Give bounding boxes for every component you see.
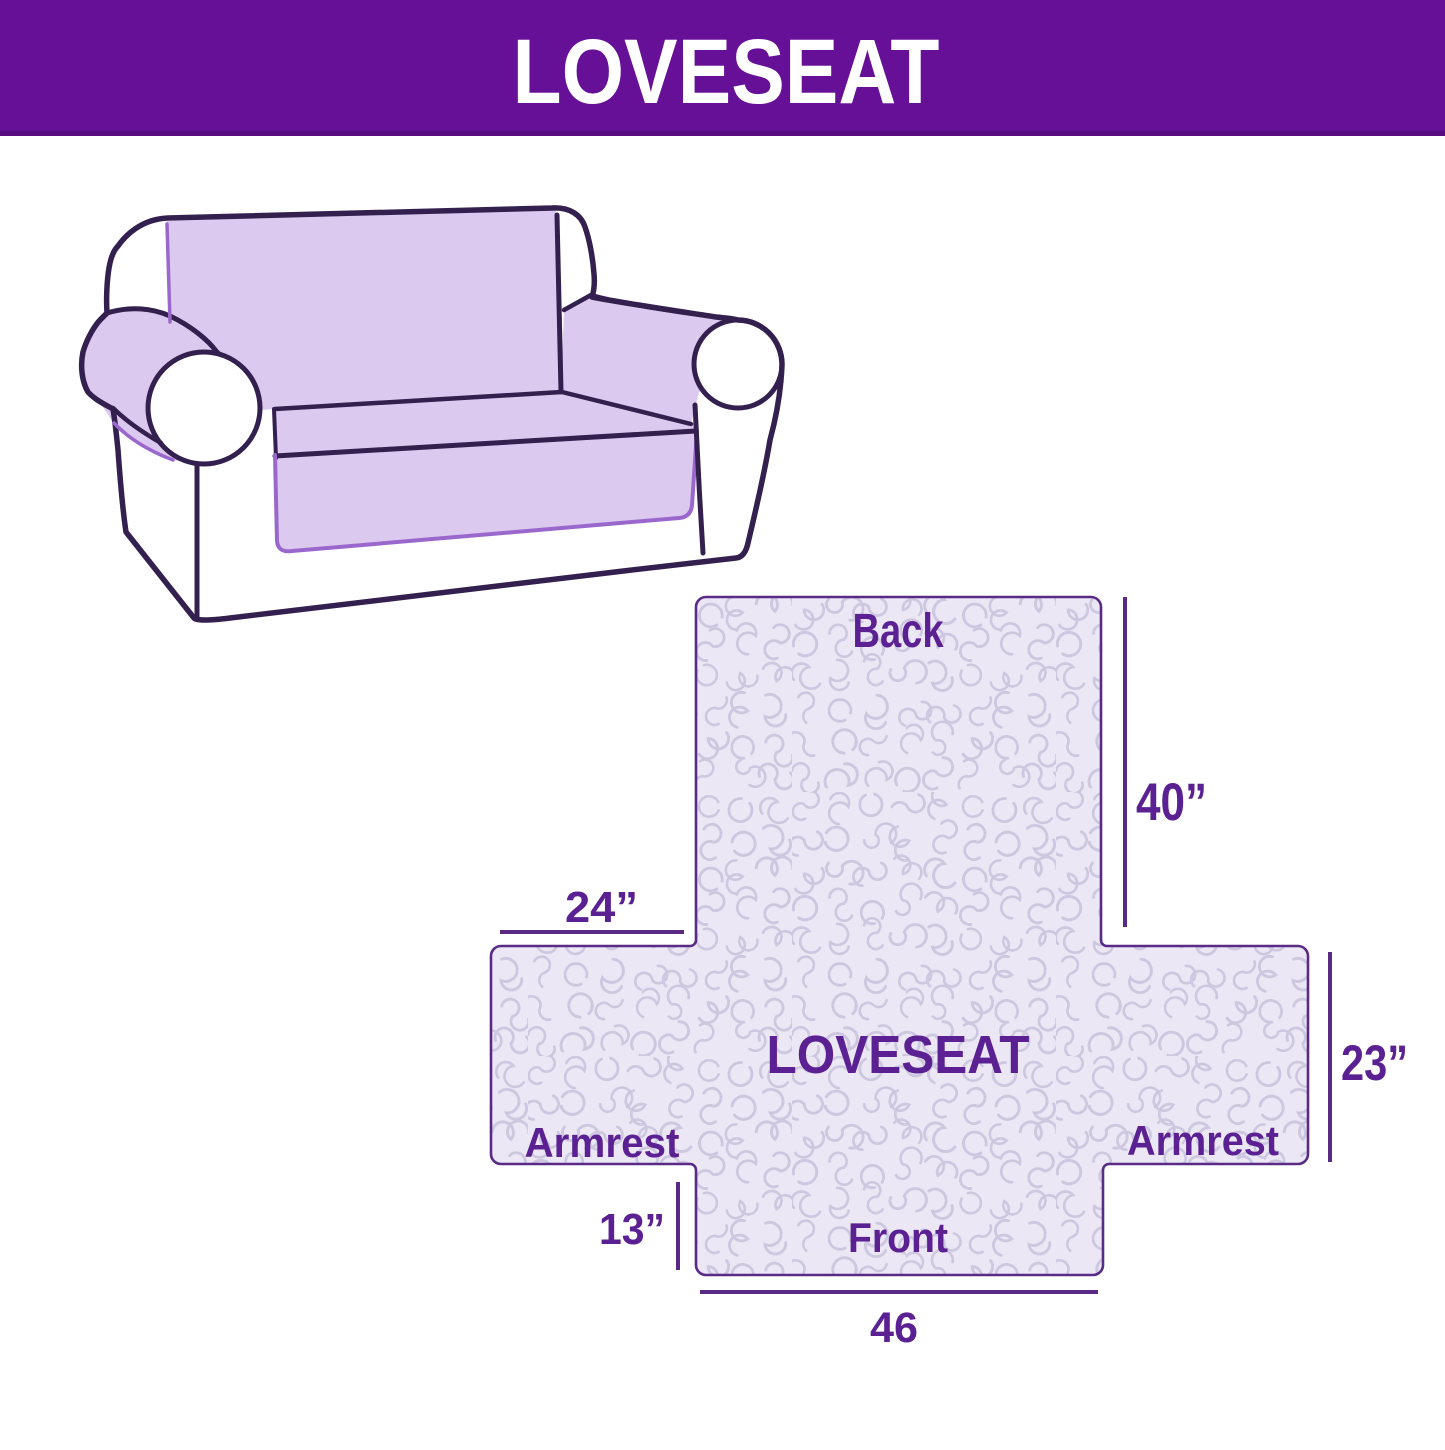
svg-text:Armrest: Armrest	[525, 1119, 680, 1166]
svg-text:Armrest: Armrest	[1127, 1117, 1279, 1164]
svg-text:46: 46	[870, 1304, 918, 1352]
svg-text:Back: Back	[853, 605, 944, 658]
svg-text:23”: 23”	[1341, 1035, 1408, 1091]
svg-text:LOVESEAT: LOVESEAT	[513, 21, 940, 123]
svg-text:LOVESEAT: LOVESEAT	[767, 1025, 1030, 1085]
svg-text:24”: 24”	[565, 883, 638, 932]
svg-text:Front: Front	[848, 1214, 948, 1261]
svg-text:13”: 13”	[599, 1205, 665, 1254]
svg-text:40”: 40”	[1136, 773, 1207, 832]
